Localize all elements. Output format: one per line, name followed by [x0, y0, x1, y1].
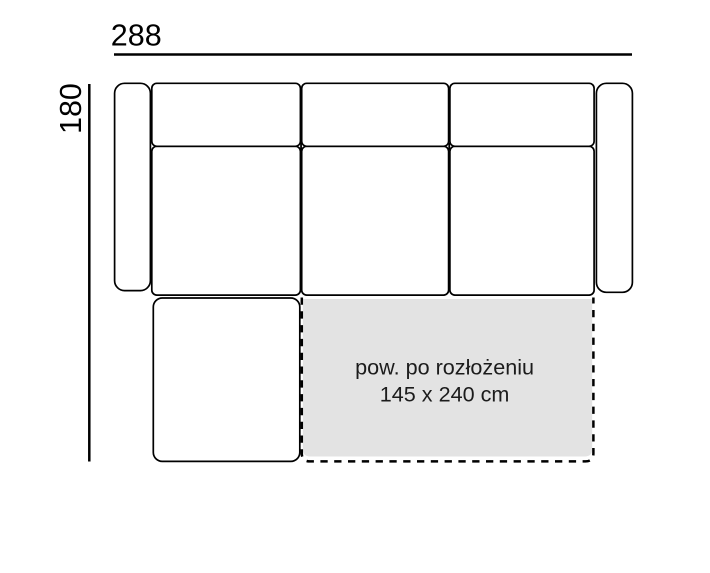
svg-text:180: 180 — [54, 83, 88, 134]
svg-text:145 x 240 cm: 145 x 240 cm — [380, 382, 510, 407]
svg-text:288: 288 — [111, 19, 162, 53]
svg-text:pow. po rozłożeniu: pow. po rozłożeniu — [355, 355, 534, 380]
